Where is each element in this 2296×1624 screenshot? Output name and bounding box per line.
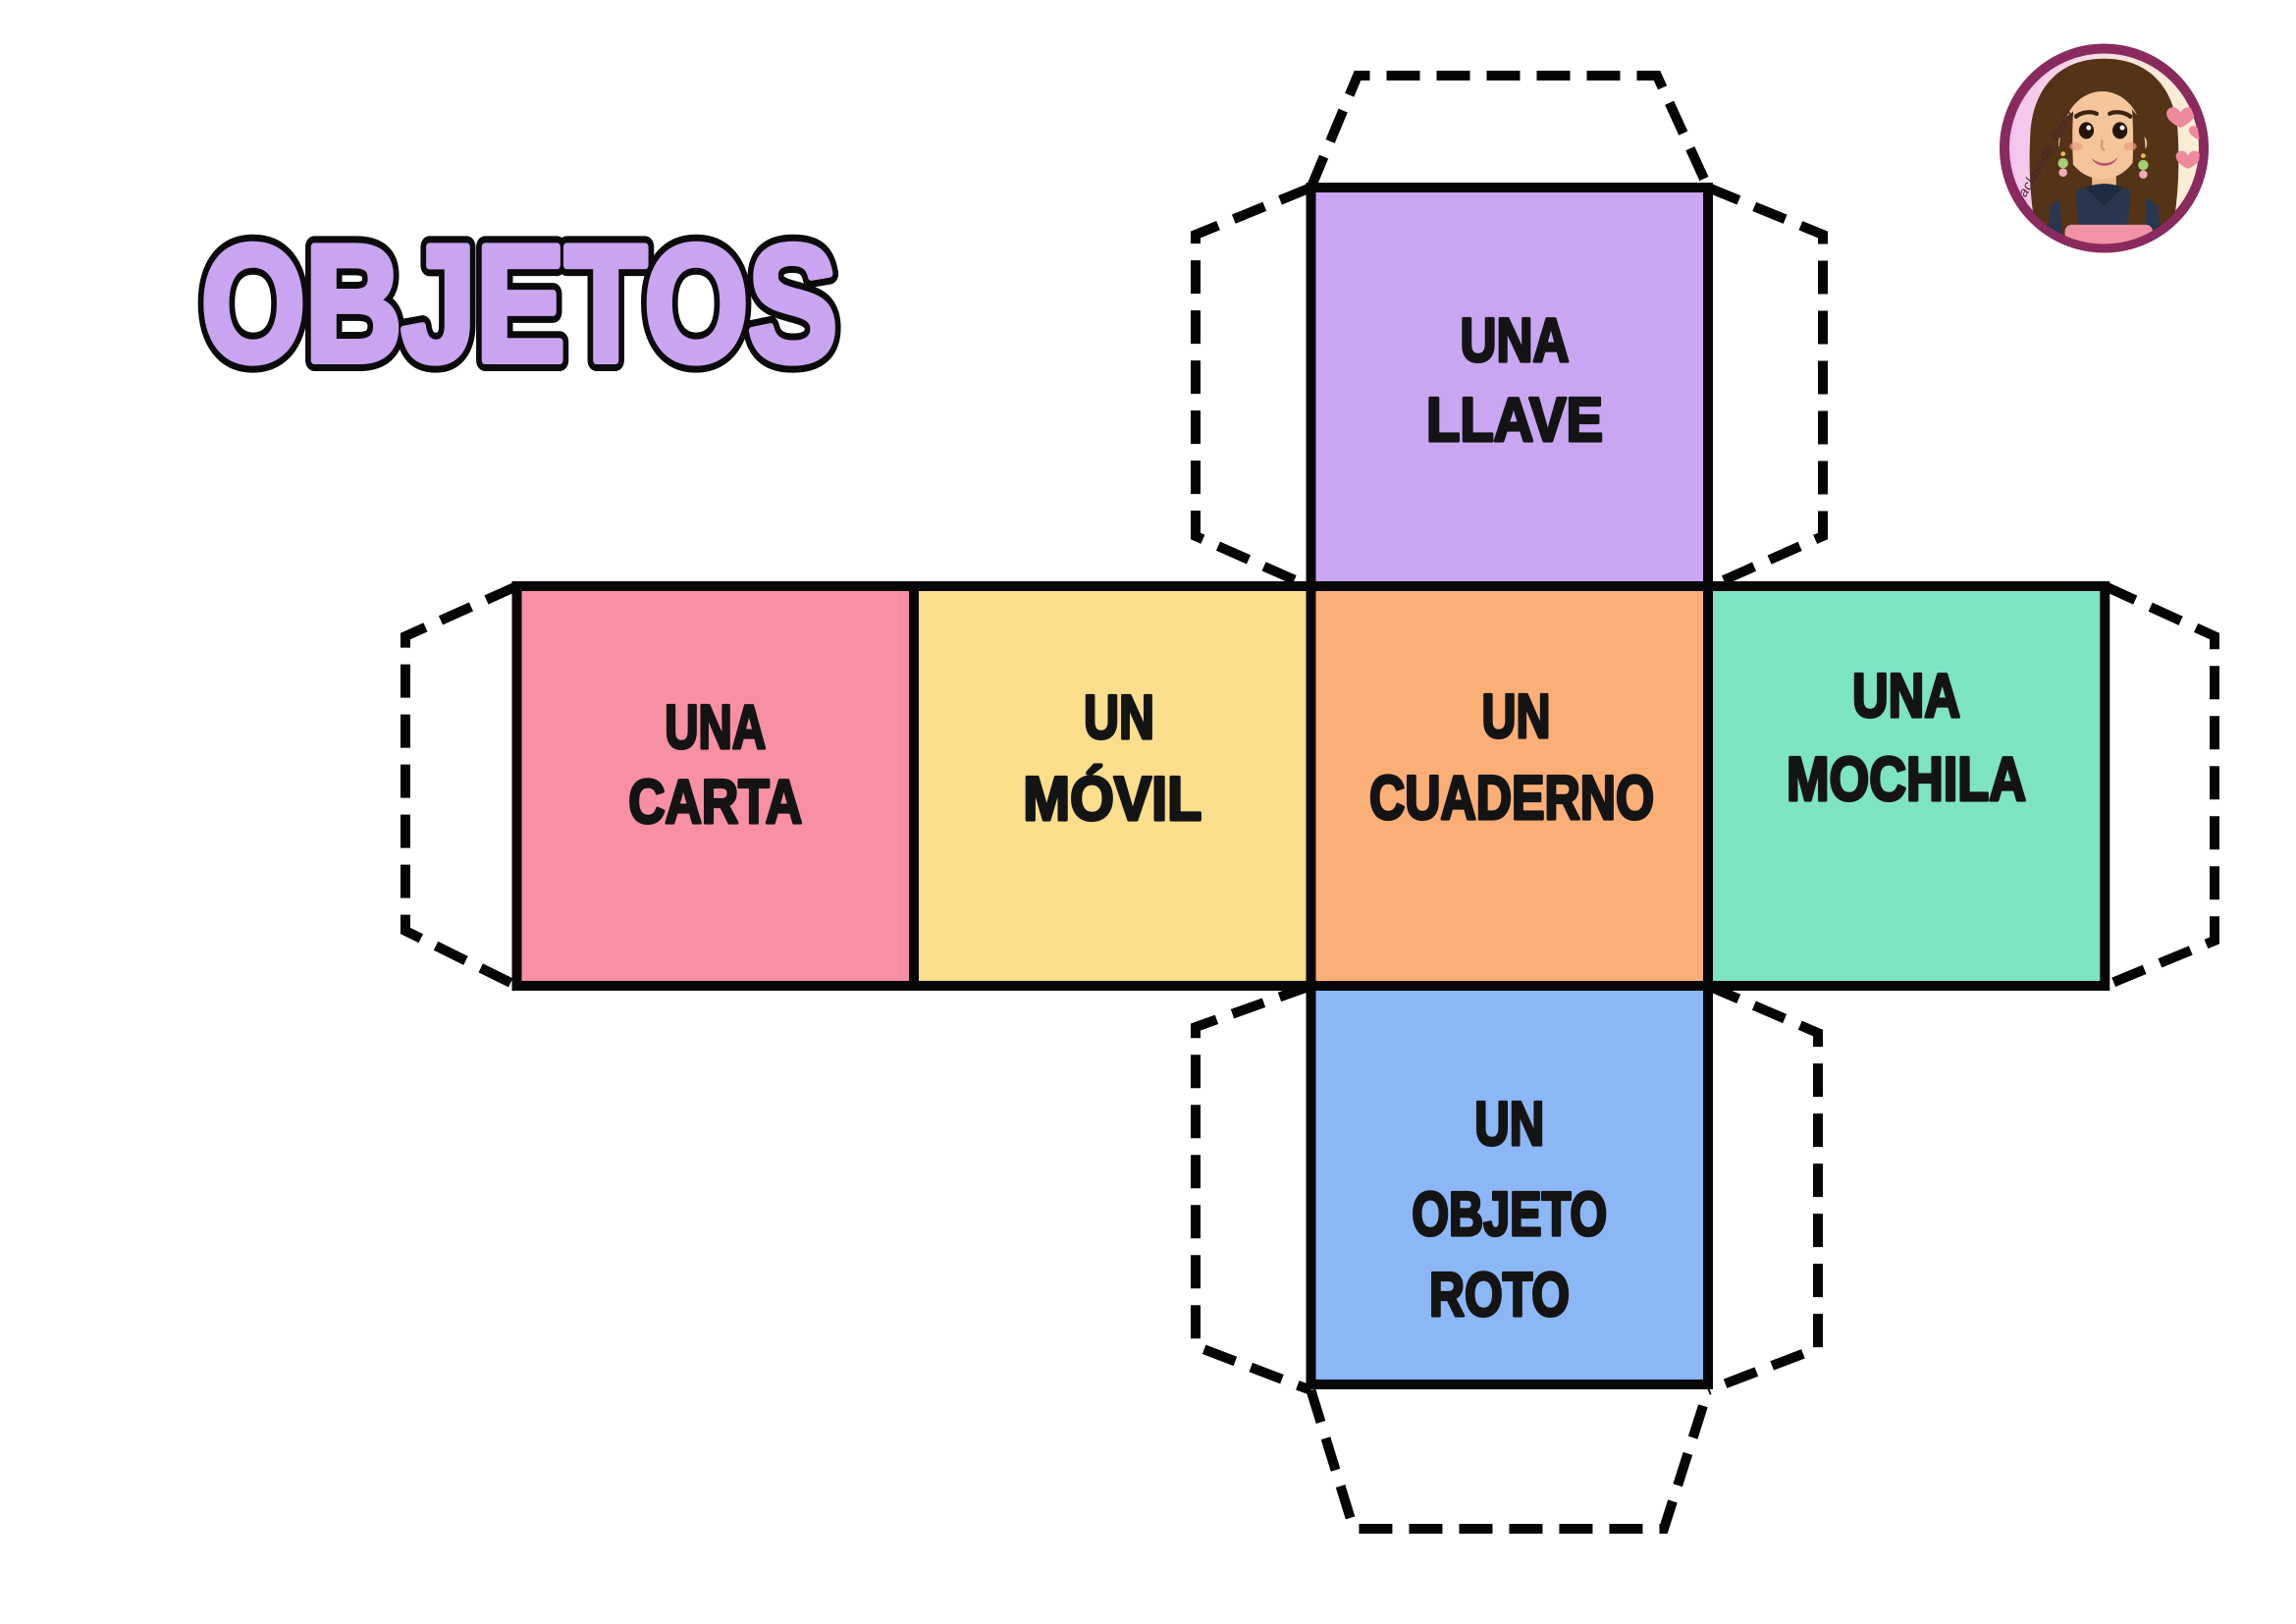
svg-text:MOCHILA: MOCHILA [1787, 745, 2026, 814]
svg-text:UNA: UNA [1461, 306, 1570, 375]
svg-text:UN: UN [1084, 683, 1154, 752]
svg-text:CUADERNO: CUADERNO [1369, 764, 1654, 833]
svg-text:UNA: UNA [665, 693, 766, 762]
svg-text:CARTA: CARTA [628, 768, 802, 837]
svg-text:ROTO: ROTO [1429, 1261, 1570, 1329]
svg-text:UNA: UNA [1852, 662, 1960, 731]
svg-text:OBJETOS: OBJETOS [201, 211, 837, 396]
svg-text:UN: UN [1474, 1090, 1544, 1159]
svg-text:MÓVIL: MÓVIL [1023, 765, 1201, 834]
svg-text:LLAVE: LLAVE [1426, 386, 1603, 455]
svg-text:UN: UN [1482, 682, 1551, 751]
svg-text:OBJETO: OBJETO [1412, 1180, 1607, 1249]
